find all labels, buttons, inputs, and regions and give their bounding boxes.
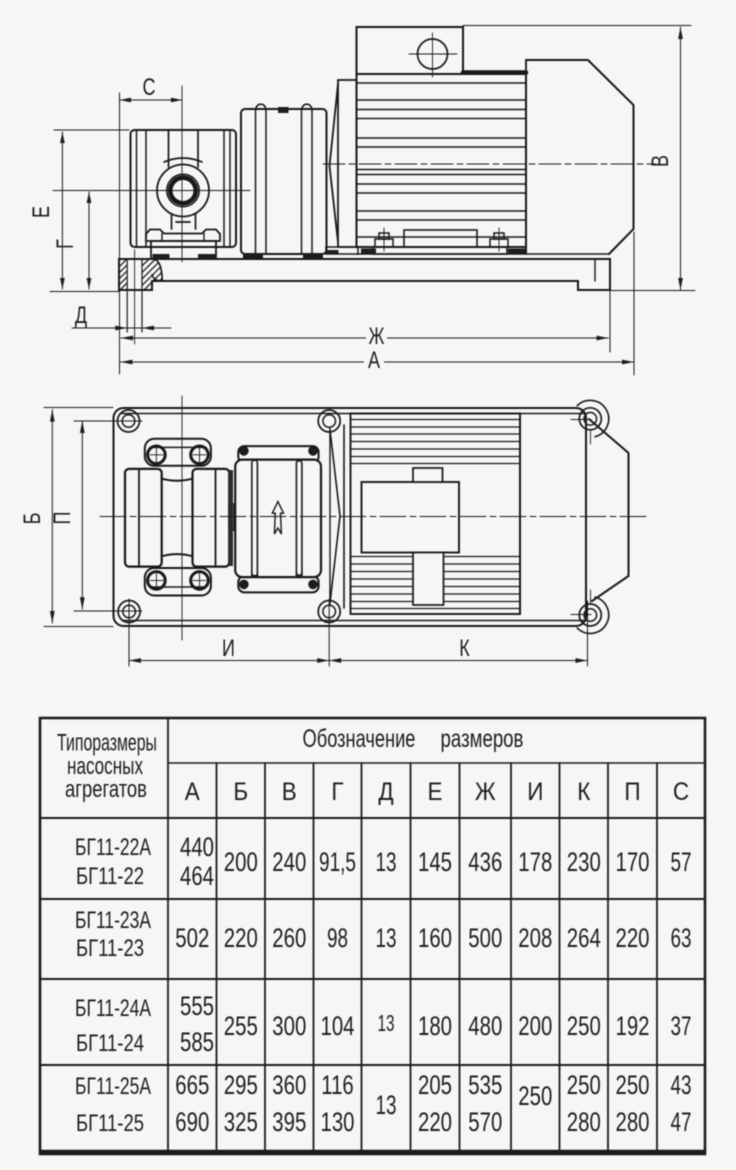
svg-text:БГ11-24А: БГ11-24А [75, 995, 151, 1021]
svg-text:240: 240 [272, 847, 306, 877]
svg-text:440: 440 [180, 832, 214, 862]
svg-text:13: 13 [377, 1011, 394, 1037]
svg-text:170: 170 [616, 847, 650, 877]
svg-text:220: 220 [224, 923, 258, 953]
svg-text:13: 13 [375, 847, 396, 877]
svg-text:555: 555 [180, 991, 214, 1021]
svg-text:200: 200 [224, 847, 258, 877]
svg-text:размеров: размеров [441, 724, 524, 752]
svg-text:А: А [368, 348, 381, 374]
svg-text:13: 13 [375, 1090, 396, 1120]
svg-text:178: 178 [518, 847, 552, 877]
svg-text:436: 436 [468, 847, 502, 877]
svg-text:БГ11-24: БГ11-24 [76, 1030, 144, 1057]
svg-text:180: 180 [418, 1011, 452, 1041]
svg-text:В: В [282, 778, 297, 806]
svg-text:Г: Г [331, 778, 343, 806]
svg-text:220: 220 [418, 1107, 452, 1137]
svg-text:агрегатов: агрегатов [65, 776, 147, 803]
svg-text:98: 98 [327, 923, 348, 953]
svg-text:360: 360 [272, 1070, 306, 1100]
svg-text:57: 57 [670, 847, 691, 877]
svg-text:13: 13 [375, 923, 396, 953]
svg-text:200: 200 [518, 1011, 552, 1041]
svg-text:130: 130 [321, 1107, 355, 1137]
svg-text:БГ11-22А: БГ11-22А [75, 834, 151, 860]
svg-text:И: И [527, 778, 543, 806]
svg-text:Ж: Ж [475, 778, 496, 806]
svg-text:П: П [50, 512, 76, 525]
svg-text:230: 230 [567, 847, 601, 877]
svg-text:250: 250 [567, 1070, 601, 1100]
svg-text:690: 690 [175, 1107, 209, 1137]
svg-text:300: 300 [272, 1011, 306, 1041]
svg-text:В: В [648, 155, 674, 167]
svg-text:Д: Д [378, 778, 393, 806]
svg-text:255: 255 [224, 1011, 258, 1041]
svg-text:480: 480 [468, 1011, 502, 1041]
svg-text:БГ11-25: БГ11-25 [76, 1110, 144, 1137]
svg-text:47: 47 [670, 1107, 691, 1137]
svg-text:Ж: Ж [369, 323, 386, 349]
svg-text:Д: Д [75, 303, 87, 329]
svg-text:91,5: 91,5 [319, 847, 356, 877]
svg-text:208: 208 [518, 923, 552, 953]
svg-text:192: 192 [616, 1011, 650, 1041]
svg-text:500: 500 [468, 923, 502, 953]
svg-text:БГ11-23А: БГ11-23А [75, 907, 151, 933]
svg-text:220: 220 [616, 923, 650, 953]
svg-text:А: А [185, 778, 200, 806]
svg-text:264: 264 [567, 923, 601, 953]
svg-text:И: И [222, 636, 235, 662]
svg-text:Б: Б [233, 778, 248, 806]
svg-text:250: 250 [616, 1070, 650, 1100]
svg-text:Е: Е [29, 206, 55, 218]
svg-text:464: 464 [180, 861, 214, 891]
svg-text:П: П [624, 778, 640, 806]
svg-text:37: 37 [670, 1011, 691, 1041]
svg-text:63: 63 [670, 923, 691, 953]
svg-text:БГ11-23: БГ11-23 [76, 935, 144, 962]
svg-text:280: 280 [567, 1107, 601, 1137]
svg-text:Обозначение: Обозначение [303, 724, 416, 753]
svg-text:К: К [459, 636, 470, 662]
svg-text:665: 665 [175, 1070, 209, 1100]
svg-text:145: 145 [418, 847, 452, 877]
svg-text:295: 295 [224, 1070, 258, 1100]
svg-text:502: 502 [175, 923, 209, 953]
svg-text:585: 585 [180, 1027, 214, 1057]
svg-text:160: 160 [418, 923, 452, 953]
svg-text:С: С [143, 75, 156, 101]
svg-text:Б: Б [20, 513, 46, 525]
svg-text:БГ11-22: БГ11-22 [76, 863, 144, 890]
svg-text:Е: Е [427, 778, 442, 806]
svg-text:250: 250 [518, 1081, 552, 1111]
svg-text:Г: Г [53, 239, 79, 249]
svg-text:К: К [577, 778, 590, 806]
svg-text:280: 280 [616, 1107, 650, 1137]
svg-text:325: 325 [224, 1107, 258, 1137]
svg-text:104: 104 [321, 1011, 355, 1041]
svg-text:116: 116 [321, 1070, 353, 1100]
svg-text:250: 250 [567, 1011, 601, 1041]
svg-text:535: 535 [468, 1070, 502, 1100]
svg-text:260: 260 [272, 923, 306, 953]
svg-text:395: 395 [272, 1107, 306, 1137]
svg-text:БГ11-25А: БГ11-25А [75, 1073, 151, 1099]
svg-text:570: 570 [468, 1107, 502, 1137]
svg-text:С: С [673, 778, 689, 806]
svg-text:205: 205 [418, 1070, 452, 1100]
svg-text:43: 43 [670, 1070, 691, 1100]
